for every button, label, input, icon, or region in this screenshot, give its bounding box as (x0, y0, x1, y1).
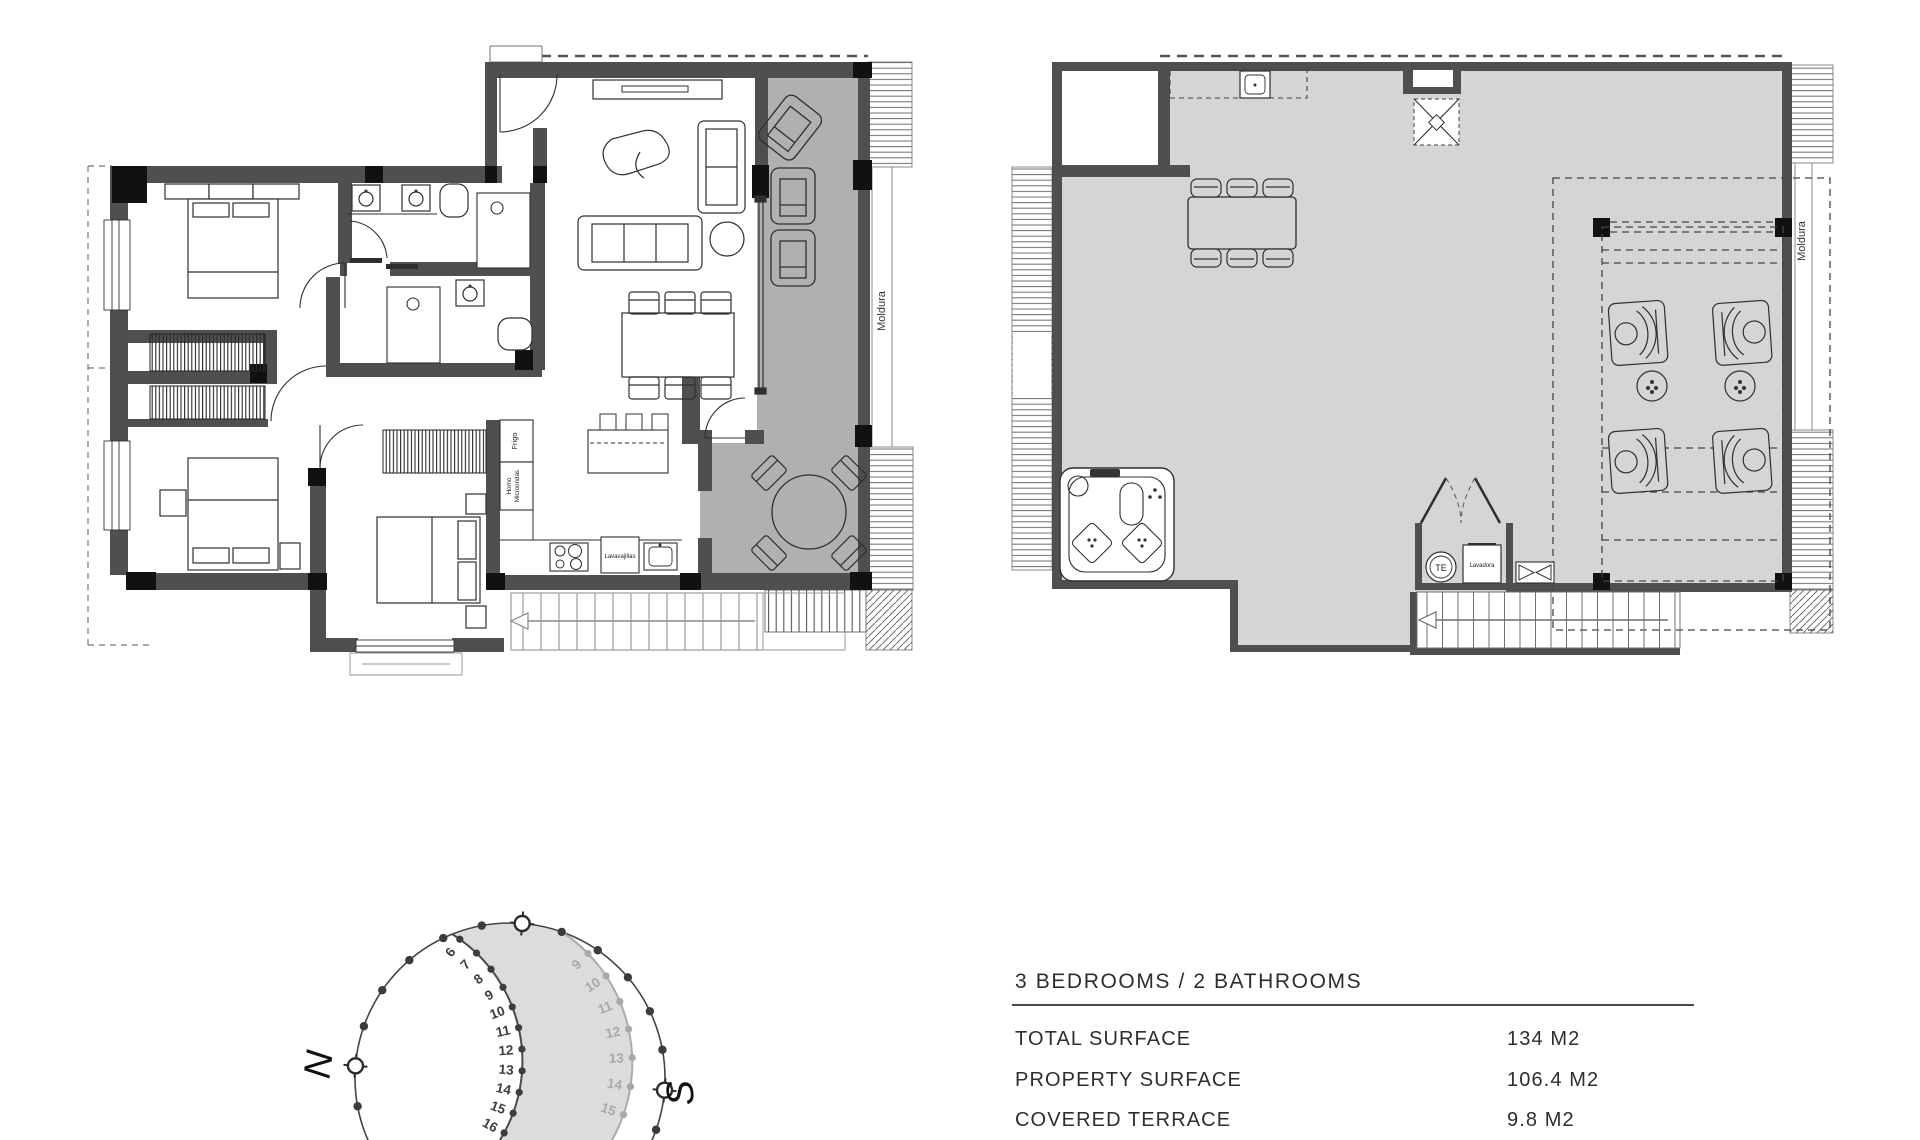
sun-lounger (1608, 300, 1668, 366)
sun-hour-label: 14 (495, 1080, 513, 1098)
compass-sun-diagram: 6789101112131415169101112131415 N S (297, 911, 703, 1140)
sun-lounger (1608, 428, 1668, 494)
moldura-label: Moldura (1796, 220, 1808, 261)
sun-hour-label: 13 (498, 1062, 515, 1078)
washing-machine-label: Lavadora (1469, 563, 1495, 569)
spec-label: COVERED TERRACE (1015, 1109, 1231, 1131)
ground-floor-plan: Moldura (88, 46, 913, 675)
moldura-label: Moldura (876, 290, 888, 331)
toilet (440, 184, 468, 217)
bathroom2-fixtures (387, 280, 532, 363)
nightstand (466, 606, 486, 628)
entry-step (490, 46, 542, 62)
chimney-flue (1413, 70, 1453, 87)
plans-canvas: Moldura (0, 0, 1920, 1140)
spec-row-property-surface: PROPERTY SURFACE 106.4 M2 (1015, 1069, 1695, 1092)
spec-label: TOTAL SURFACE (1015, 1028, 1191, 1050)
bar-stool (626, 414, 642, 430)
roof-chair (1191, 179, 1221, 197)
stairwell-void (1062, 70, 1158, 165)
fridge-label: Frigo (510, 432, 519, 449)
bathroom1-fixtures (347, 184, 530, 268)
side-table (710, 222, 744, 256)
sun-hour-label: 13 (608, 1050, 624, 1065)
sun-hour-label: 9 (482, 987, 496, 1004)
skylight (1414, 99, 1459, 145)
dining-chair (665, 292, 695, 314)
roof-chair (1227, 249, 1257, 267)
floor-grate (1516, 562, 1554, 583)
dishwasher-label: Lavavajillas (604, 554, 635, 560)
spec-divider (1012, 1004, 1694, 1006)
spec-row-covered-terrace: COVERED TERRACE 9.8 M2 (1015, 1109, 1695, 1132)
compass-north-label: N (297, 1048, 342, 1081)
bedroom1-furniture (165, 184, 299, 298)
sun-hour-label: 16 (480, 1115, 501, 1136)
oven-label-1: Horno (506, 477, 513, 494)
spec-table: 3 BEDROOMS / 2 BATHROOMS TOTAL SURFACE 1… (1012, 970, 1702, 1140)
oven-label-2: Microondas (514, 470, 521, 502)
roof-dining-set (1188, 179, 1296, 267)
sun-hour-label: 6 (442, 944, 459, 959)
solarium-plan: Moldura (1012, 56, 1833, 655)
sun-hour-label: 7 (457, 957, 473, 973)
stair-landing (1013, 332, 1051, 394)
spec-value: 106.4 M2 (1507, 1069, 1599, 1092)
lounge-chair (603, 130, 669, 178)
bar-stool (652, 414, 668, 430)
roof-chair (1227, 179, 1257, 197)
toilet (498, 318, 532, 350)
roof-dining-table (1188, 197, 1296, 249)
solarium-stairs (1417, 592, 1680, 648)
spec-label: PROPERTY SURFACE (1015, 1069, 1242, 1091)
spec-title: 3 BEDROOMS / 2 BATHROOMS (1015, 970, 1362, 994)
sun-lounger (1712, 428, 1772, 494)
spec-value: 134 M2 (1507, 1028, 1580, 1051)
floorplan-sheet: Moldura (0, 0, 1920, 1140)
spec-value: 9.8 M2 (1507, 1109, 1575, 1132)
sofa-3seat (578, 216, 702, 270)
kitchen: Frigo Horno Microondas Lavavajillas (500, 414, 682, 573)
side-table-flower (1725, 371, 1755, 401)
compass-cardinal-marker (343, 1053, 369, 1079)
kitchen-island (588, 430, 668, 473)
living-room (578, 80, 745, 399)
sun-hour-label: 8 (471, 970, 486, 987)
sofa-2seat (698, 121, 745, 213)
sun-lounger (1712, 300, 1772, 366)
sun-hour-label: 14 (606, 1076, 624, 1093)
bedroom2-furniture (160, 458, 300, 570)
bedroom3-furniture (377, 494, 486, 628)
sun-hour-label: 11 (494, 1022, 512, 1040)
nightstand (280, 543, 300, 569)
dining-chair (629, 377, 659, 399)
roof-chair (1191, 249, 1221, 267)
dining-chair (629, 292, 659, 314)
compass-south-label: S (659, 1079, 703, 1108)
shower (477, 193, 530, 268)
spec-row-total-surface: TOTAL SURFACE 134 M2 (1015, 1028, 1695, 1051)
side-table-flower (1637, 371, 1667, 401)
bar-stool (600, 414, 616, 430)
cooktop (550, 543, 588, 571)
nightstand (160, 490, 186, 516)
roof-chair (1263, 179, 1293, 197)
moldura-strip (1795, 163, 1812, 430)
sun-hour-label: 12 (498, 1042, 514, 1058)
jacuzzi (1060, 468, 1174, 581)
dining-table (622, 313, 734, 377)
water-heater-label: TE (1435, 563, 1447, 573)
dining-chair (701, 292, 731, 314)
roof-chair (1263, 249, 1293, 267)
sun-hour-label: 15 (488, 1098, 508, 1117)
dining-chair (701, 377, 731, 399)
sun-hour-label: 10 (488, 1003, 507, 1022)
nightstand (466, 494, 486, 514)
sun-hour-label: 12 (604, 1024, 622, 1042)
